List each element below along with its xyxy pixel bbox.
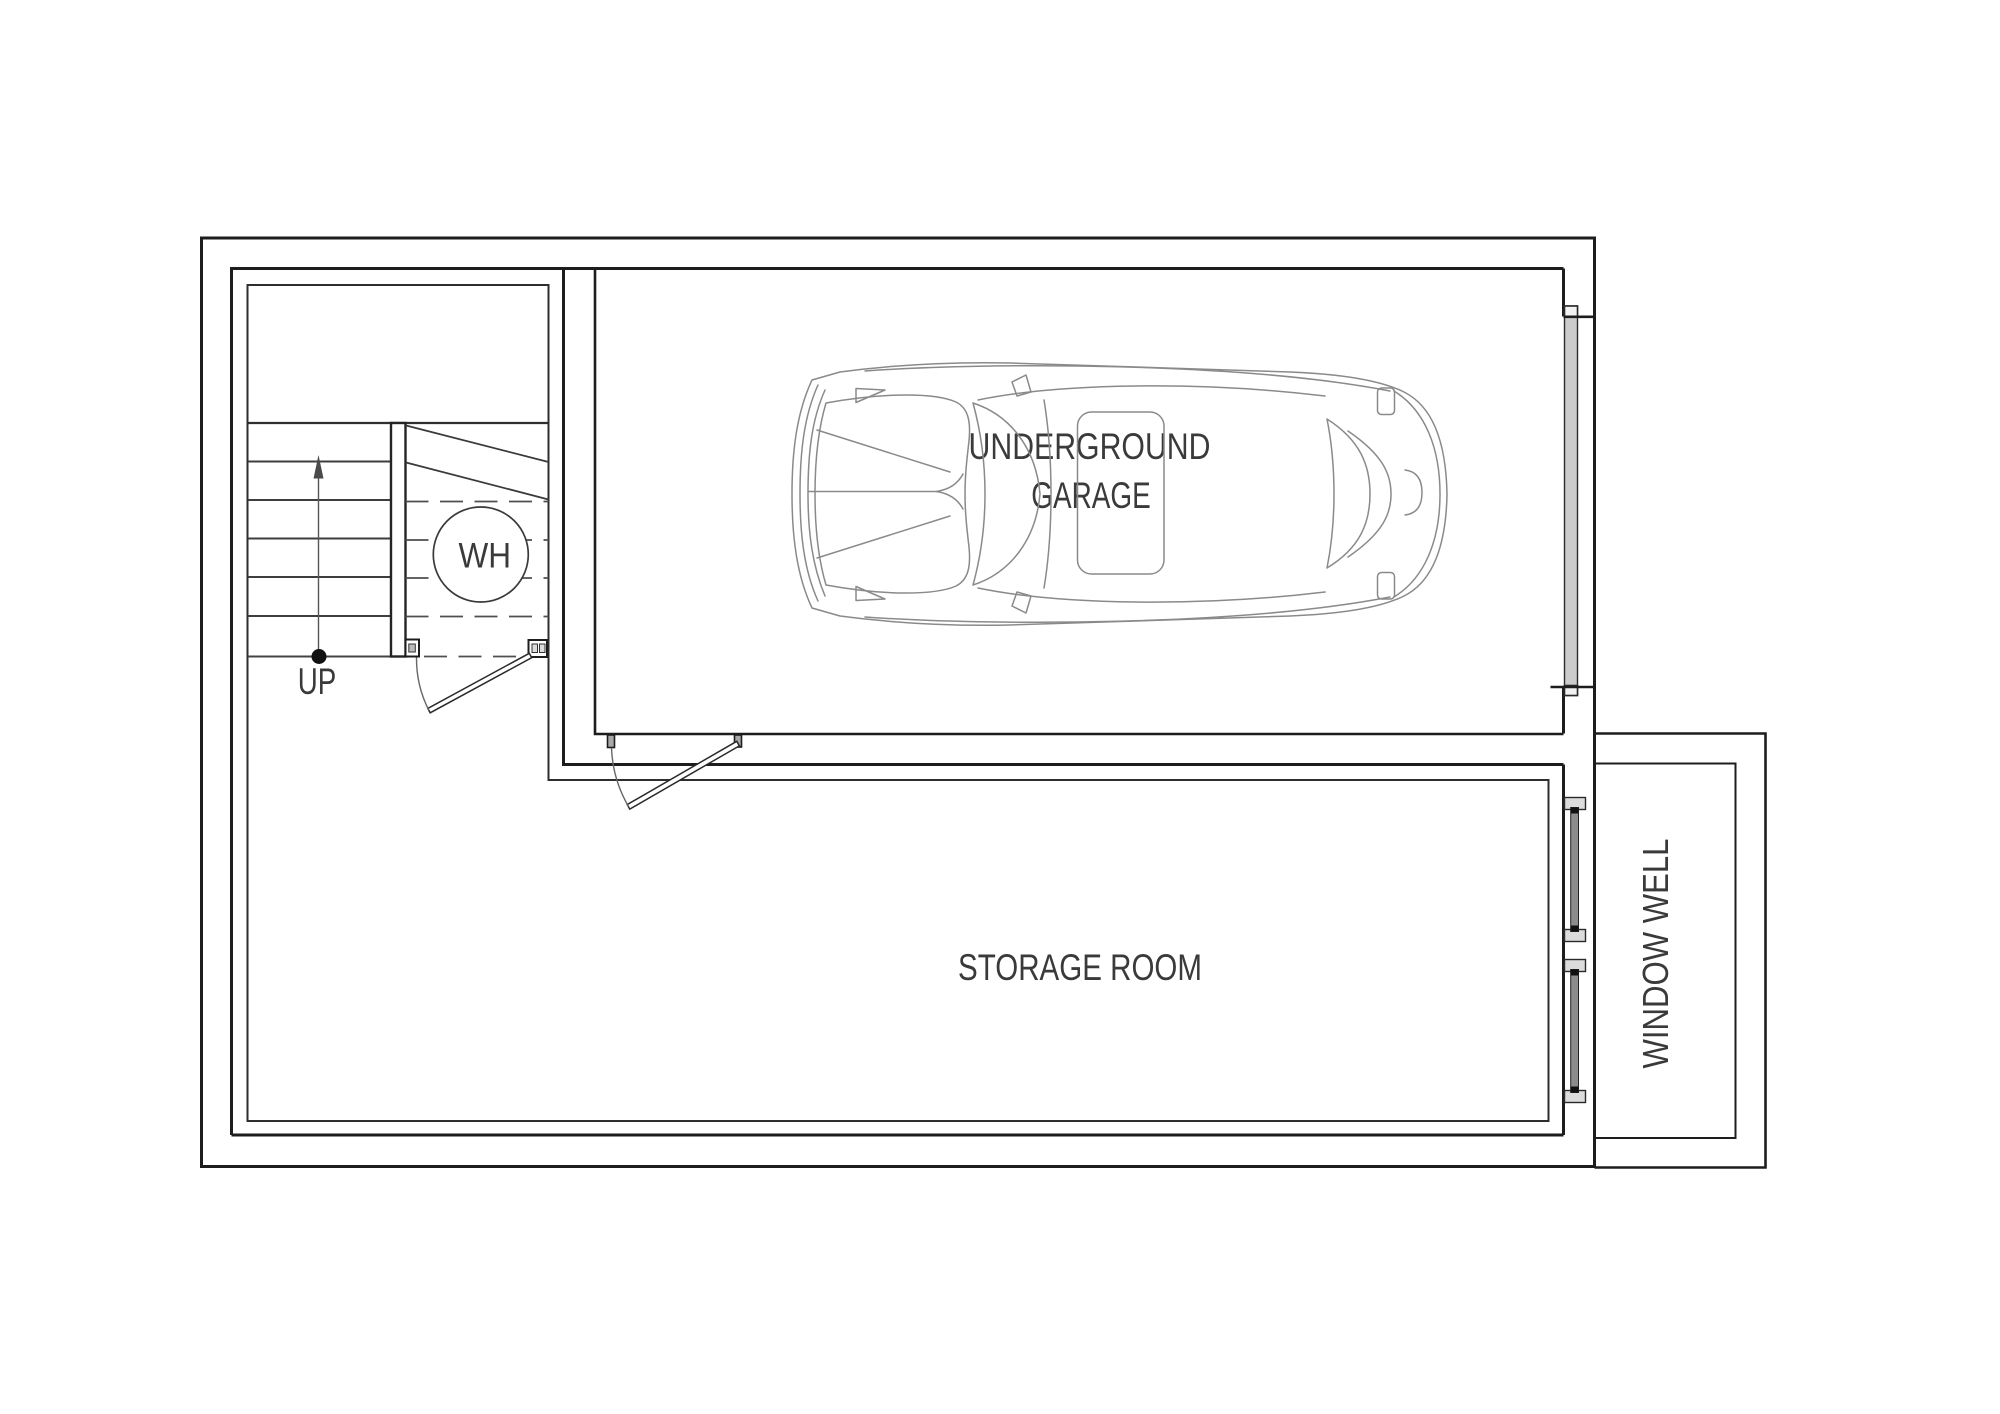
svg-text:WH: WH (459, 537, 512, 576)
svg-text:WINDOW WELL: WINDOW WELL (1635, 839, 1676, 1069)
svg-text:GARAGE: GARAGE (1031, 474, 1151, 516)
svg-text:STORAGE ROOM: STORAGE ROOM (958, 946, 1202, 988)
svg-text:UP: UP (298, 661, 337, 702)
svg-text:UNDERGROUND: UNDERGROUND (969, 425, 1211, 467)
